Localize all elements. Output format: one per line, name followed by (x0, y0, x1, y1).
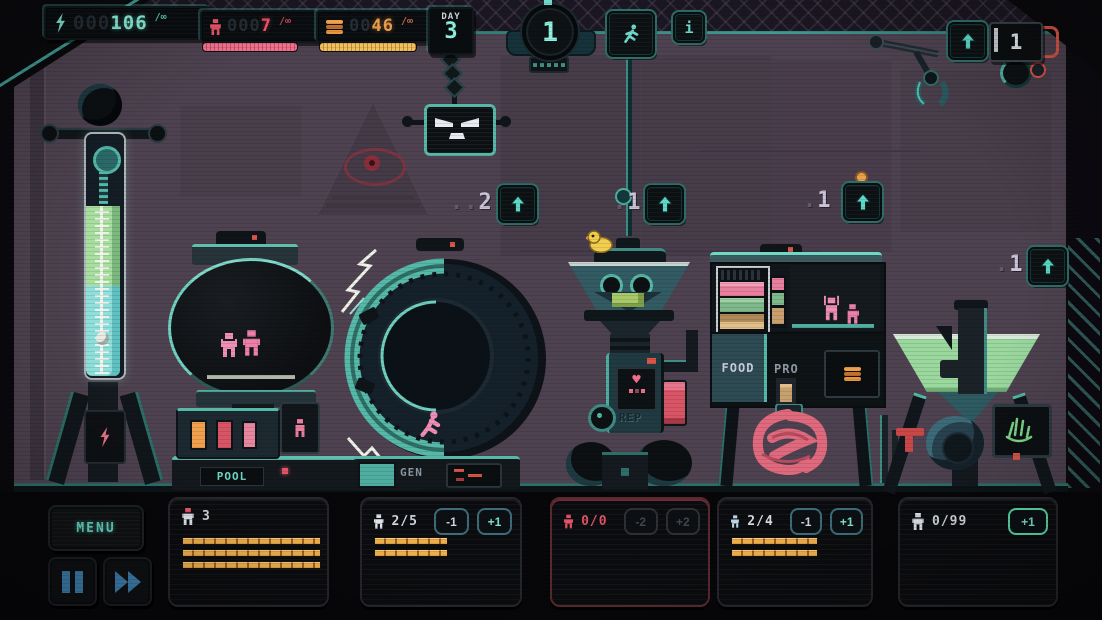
xray-hand-icon (995, 407, 1043, 449)
up-arrow-icon (959, 32, 977, 50)
info-icon: i (684, 19, 693, 37)
gauge-scale-ticks (95, 206, 109, 374)
worker-count: 3 (202, 509, 211, 524)
running-person-icon (619, 22, 643, 46)
add-worker-button[interactable]: +1 (830, 508, 863, 535)
food-column (770, 276, 786, 328)
generator-display (446, 463, 502, 488)
burger-icon (326, 19, 343, 35)
worker-count: 0/0 (581, 514, 607, 529)
food-shelf (792, 324, 874, 328)
indicator-light (1013, 453, 1020, 460)
population-progress-bar (202, 42, 298, 52)
add-worker-button[interactable]: +2 (666, 508, 700, 535)
upgrade-cost: .1 (803, 188, 832, 213)
generator-label: GEN (400, 466, 423, 479)
food-humanoid (846, 302, 859, 326)
cost-dots: . (803, 188, 817, 213)
lightning-icon (98, 427, 112, 447)
cost-dots: . (613, 190, 627, 215)
gauge-energy-panel (84, 410, 126, 464)
grinder-screen (992, 404, 1052, 458)
upgrade-cost: .1 (995, 252, 1024, 277)
person-icon (912, 513, 924, 530)
resource-bar (374, 549, 448, 557)
person-icon (374, 513, 384, 530)
crane-counter-panel: 1 (989, 22, 1043, 62)
cost-value: 1 (627, 190, 641, 215)
crane-counter-value: 1 (1010, 30, 1023, 54)
pool-floor (207, 375, 295, 379)
food-value: 46 (371, 16, 393, 36)
person-icon (731, 513, 739, 530)
cost-value: 1 (817, 188, 831, 213)
counter-pad: 000 (227, 16, 261, 36)
console-slot-pink (242, 421, 257, 449)
person-icon (564, 513, 573, 530)
grinder-pipe (958, 308, 987, 394)
food-label-2: PRO (774, 362, 799, 376)
food-block-tan (720, 314, 764, 329)
worker-panel-generator: 2/5 -1 +1 (360, 497, 522, 607)
resource-bar (182, 549, 321, 557)
pool-label: POOL (217, 470, 248, 483)
worker-count: 2/5 (392, 514, 418, 529)
rubber-duck (586, 229, 614, 253)
console-slot-orange (190, 420, 207, 450)
heart-monitor: ♥ (616, 367, 657, 411)
flask-specimen (612, 293, 644, 307)
upgrade-button-generator[interactable] (498, 185, 537, 223)
burger-icon (844, 366, 861, 382)
menu-button[interactable]: MENU (48, 505, 144, 551)
remove-worker-button[interactable]: -1 (790, 508, 823, 535)
add-worker-button[interactable]: +1 (477, 508, 512, 535)
menu-label: MENU (76, 521, 115, 536)
energy-value: 106 (110, 12, 147, 34)
wall-pipe (30, 60, 46, 480)
resource-bar (731, 537, 818, 545)
eye-icon (344, 148, 406, 186)
pool-console (176, 408, 280, 459)
pool-humanoid (243, 323, 260, 363)
wall-panel (640, 60, 892, 252)
cost-dots: . (995, 252, 1009, 277)
wave-badge: 1 (522, 4, 578, 60)
upgrade-arrow-button[interactable] (948, 22, 987, 60)
robot-face-hand (500, 116, 511, 127)
person-icon (182, 508, 194, 525)
game-screen: 000106 /∞ 0007 /∞ 0046 /∞ DAY 3 1 i (0, 0, 1102, 620)
energy-counter: 000106 /∞ (44, 6, 210, 40)
flask-rim (584, 310, 674, 321)
resource-bar (182, 537, 321, 545)
up-arrow-icon (1039, 257, 1057, 275)
intestine-graphic (742, 404, 838, 486)
gauge-robot-head (78, 84, 122, 126)
add-worker-button[interactable]: +1 (1008, 508, 1048, 535)
army-button[interactable] (607, 11, 655, 57)
resource-bars (182, 537, 321, 569)
gauge-float (93, 146, 121, 174)
resource-bar (374, 537, 448, 545)
food-label: FOOD (722, 361, 755, 375)
worker-panel-grinder: 0/99 +1 (898, 497, 1058, 607)
lightning-icon (54, 13, 67, 33)
wave-value: 1 (542, 17, 558, 48)
cost-value: 2 (479, 190, 493, 215)
upgrade-button-grinder[interactable] (1028, 247, 1067, 285)
generator-plate (358, 462, 396, 488)
food-counter: 0046 /∞ (316, 10, 440, 43)
population-max: /∞ (279, 12, 291, 27)
screen-person-icon (294, 416, 306, 440)
worker-panel-food: 2/4 -1 +1 (717, 497, 873, 607)
food-chute (776, 378, 796, 404)
gauge-tube (84, 132, 126, 380)
counter-slot (994, 28, 998, 52)
food-burger-screen (824, 350, 880, 398)
worker-panel-replicator: 0/0 -2 +2 (550, 497, 710, 607)
gauge-hand (40, 124, 59, 143)
replicator-base (602, 452, 648, 489)
gauge-hand (148, 124, 167, 143)
fast-forward-icon (115, 571, 141, 593)
remove-worker-button[interactable]: -2 (624, 508, 658, 535)
replicator-canister (662, 380, 687, 426)
gauge-screw (99, 172, 108, 204)
cost-dots: .. (450, 190, 479, 215)
pause-button[interactable] (48, 557, 97, 606)
pool-screen (280, 402, 320, 454)
cost-value: 1 (1009, 252, 1023, 277)
replicator-pipe (686, 330, 698, 372)
indicator-light (282, 468, 288, 474)
console-slot-red (216, 420, 233, 450)
robot-face-hand (402, 116, 413, 127)
worker-count: 2/4 (747, 514, 773, 529)
pool-humanoid (221, 327, 237, 363)
up-arrow-icon (854, 193, 872, 211)
pool-dome (168, 258, 334, 398)
worker-panel-pool: 3 (168, 497, 329, 607)
person-icon (210, 19, 221, 35)
food-cabinet (710, 262, 886, 336)
resource-bars (731, 537, 818, 557)
energy-max: /∞ (155, 8, 167, 23)
grinder-valve-stem (905, 434, 913, 452)
day-value: 3 (430, 22, 472, 42)
resource-bar (731, 549, 818, 557)
upgrade-button-food[interactable] (843, 183, 882, 221)
food-label-plate: FOOD (712, 334, 767, 402)
food-band: FOOD PRO (710, 332, 886, 408)
robot-face-screen (424, 104, 496, 156)
food-progress-bar (319, 42, 417, 52)
counter-pad: 00 (349, 16, 371, 36)
wheel-top-mount (416, 238, 464, 251)
upgrade-cost: .1 (613, 190, 642, 215)
gauge-bubble (96, 332, 109, 345)
food-max: /∞ (401, 12, 413, 27)
wall-panel (180, 105, 302, 197)
info-button[interactable]: i (673, 12, 705, 43)
population-counter: 0007 /∞ (200, 10, 320, 43)
right-frame-hatch (1068, 238, 1100, 488)
up-arrow-icon (656, 195, 674, 213)
day-panel: DAY 3 (428, 7, 474, 55)
upgrade-button-replicator[interactable] (645, 185, 684, 223)
pause-icon (62, 571, 83, 593)
food-humanoid (824, 292, 839, 324)
resource-bars (374, 537, 448, 557)
population-value: 7 (261, 16, 272, 36)
worker-count: 0/99 (932, 514, 967, 529)
upgrade-cost: ..2 (450, 190, 493, 215)
heart-icon: ♥ (632, 372, 640, 388)
replicator-label: REP (619, 411, 642, 424)
electric-spark (336, 248, 416, 318)
grinder-drum (926, 416, 984, 470)
food-window-left (716, 266, 770, 334)
mini-robot (1000, 58, 1032, 88)
crane-hook-red (1042, 26, 1059, 58)
flask-joint-rings (610, 334, 650, 354)
counter-pad: 000 (73, 12, 110, 34)
food-block-pink (720, 282, 764, 296)
up-arrow-icon (509, 195, 527, 213)
remove-worker-button[interactable]: -1 (434, 508, 469, 535)
wave-badge-pip (544, 0, 552, 5)
resource-bar (182, 561, 321, 569)
generator-base: GEN (354, 456, 520, 489)
food-block-green (720, 298, 764, 312)
food-window-right (790, 266, 880, 330)
fast-forward-button[interactable] (103, 557, 152, 606)
mini-robot-accent (1030, 62, 1046, 78)
indicator-light (647, 358, 656, 364)
replicator-port (588, 404, 616, 432)
